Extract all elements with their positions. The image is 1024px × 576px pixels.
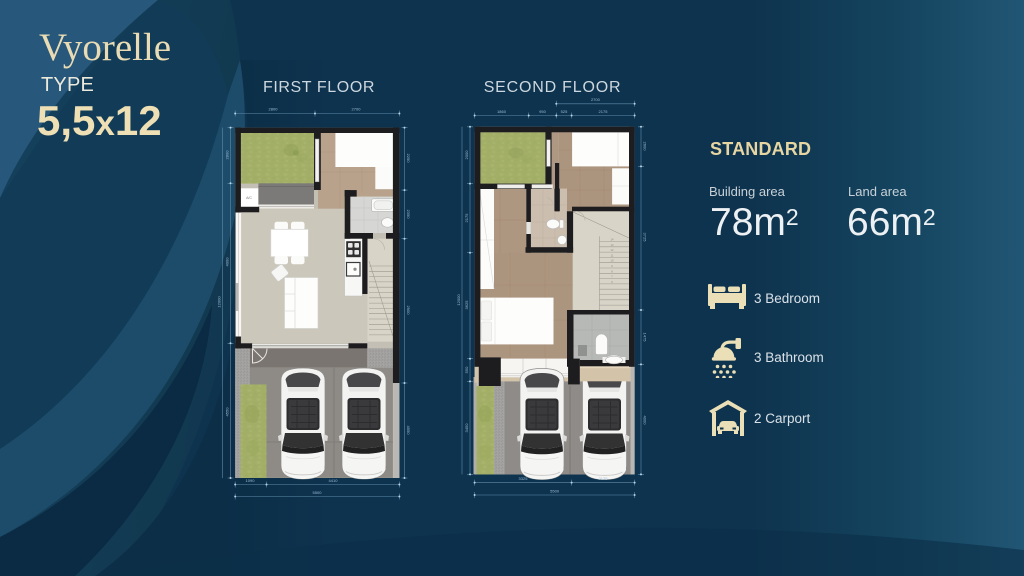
svg-text:2350: 2350: [406, 210, 411, 220]
svg-text:2800: 2800: [225, 150, 230, 160]
svg-text:2175: 2175: [599, 109, 609, 114]
svg-text:550: 550: [464, 366, 469, 373]
svg-text:2175: 2175: [464, 213, 469, 223]
svg-text:2900: 2900: [406, 306, 411, 316]
svg-text:1475: 1475: [642, 333, 647, 343]
svg-text:2700: 2700: [352, 107, 362, 112]
svg-text:4000: 4000: [225, 257, 230, 267]
svg-text:3325: 3325: [519, 476, 529, 481]
svg-text:3450: 3450: [464, 423, 469, 433]
svg-text:3625: 3625: [464, 300, 469, 310]
svg-text:4410: 4410: [329, 478, 339, 483]
svg-text:5500: 5500: [313, 490, 323, 495]
svg-text:12000: 12000: [456, 294, 461, 306]
svg-text:525: 525: [561, 109, 568, 114]
svg-text:2175: 2175: [599, 476, 609, 481]
svg-text:2800: 2800: [269, 107, 279, 112]
svg-text:950: 950: [539, 109, 546, 114]
svg-text:1090: 1090: [246, 478, 256, 483]
svg-text:A/C: A/C: [246, 196, 252, 200]
svg-text:4550: 4550: [225, 407, 230, 417]
svg-text:2250: 2250: [406, 154, 411, 164]
svg-text:12000: 12000: [217, 296, 222, 308]
svg-text:1860: 1860: [497, 109, 507, 114]
svg-text:3725: 3725: [642, 233, 647, 243]
svg-text:2700: 2700: [591, 97, 601, 102]
svg-text:2000: 2000: [464, 150, 469, 160]
svg-text:5500: 5500: [550, 488, 560, 493]
svg-text:4000: 4000: [642, 416, 647, 426]
svg-text:4550: 4550: [406, 426, 411, 436]
svg-text:2600: 2600: [642, 142, 647, 152]
